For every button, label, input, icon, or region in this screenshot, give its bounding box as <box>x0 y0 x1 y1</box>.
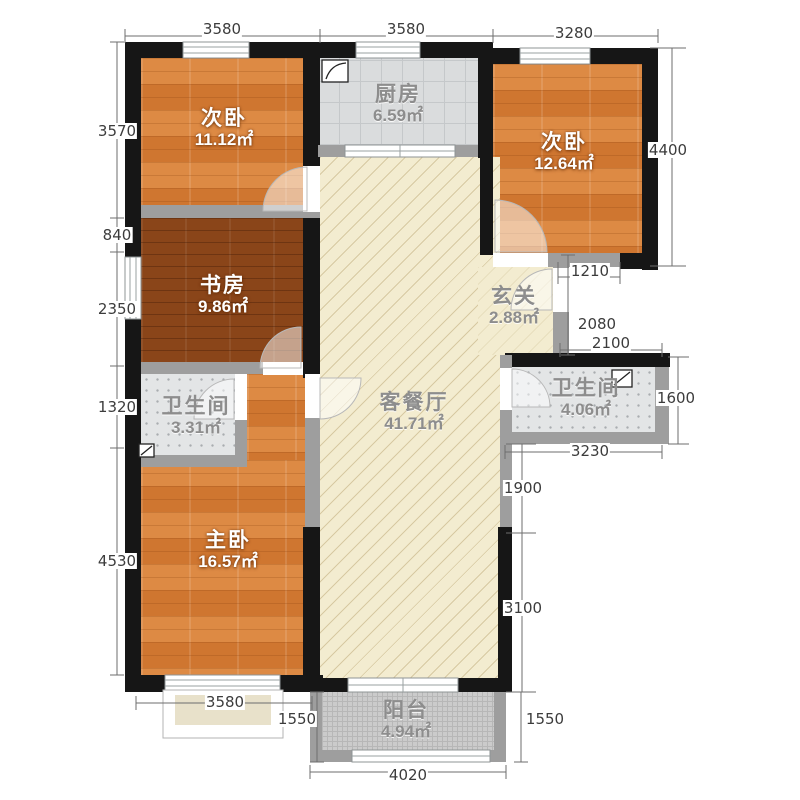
room-label-balcony: 阳台 4.94㎡ <box>381 700 431 742</box>
room-label-kitchen: 厨房 6.59㎡ <box>373 84 423 126</box>
dim-1550-right-balcony: 1550 <box>525 711 565 727</box>
dim-3570-left: 3570 <box>97 123 137 139</box>
room-label-bath-left: 卫生间 3.31㎡ <box>162 396 231 438</box>
room-label-study: 书房 9.86㎡ <box>198 275 248 317</box>
dim-4530-left: 4530 <box>97 553 137 569</box>
dim-3580-top-mid: 3580 <box>386 21 426 37</box>
dim-3580-bottom: 3580 <box>205 694 245 710</box>
dim-840-left: 840 <box>102 227 133 243</box>
window-bedroom-top-left <box>183 42 249 58</box>
dim-3100-right: 3100 <box>503 600 543 616</box>
door-arc-study <box>260 327 301 368</box>
window-master <box>165 675 280 691</box>
entry-door-opening <box>553 268 569 312</box>
room-label-bath-right: 卫生间 4.06㎡ <box>552 378 621 420</box>
door-arc-corridor <box>320 378 361 419</box>
dim-1320-left: 1320 <box>97 399 137 415</box>
room-label-living-dining: 客餐厅 41.71㎡ <box>380 392 449 434</box>
dim-1600-right: 1600 <box>656 390 696 406</box>
door-arc-bedroom-top-right <box>495 200 547 252</box>
room-label-bedroom-top-left: 次卧 11.12㎡ <box>195 108 254 150</box>
dim-1550-left-balcony: 1550 <box>277 711 317 727</box>
dim-3280-top-right: 3280 <box>554 25 594 41</box>
dim-2100-right: 2100 <box>591 335 631 351</box>
dim-2080-right: 2080 <box>577 316 617 332</box>
dim-1210-right: 1210 <box>570 263 610 279</box>
dim-3230-right: 3230 <box>570 443 610 459</box>
dim-3580-top-left: 3580 <box>202 21 242 37</box>
dim-4400-right: 4400 <box>648 142 688 158</box>
dim-4020-bottom: 4020 <box>388 767 428 783</box>
dim-1900-right: 1900 <box>503 480 543 496</box>
dim-2350-left: 2350 <box>97 301 137 317</box>
door-arc-bedroom-top-left <box>263 167 307 211</box>
door-arc-bath-right <box>512 369 550 407</box>
room-label-master-bedroom: 主卧 16.57㎡ <box>198 530 258 572</box>
floor-plan: 次卧 11.12㎡ 厨房 6.59㎡ 次卧 12.64㎡ 书房 9.86㎡ 玄关… <box>0 0 800 800</box>
window-bedroom-top-right <box>520 48 590 64</box>
room-label-bedroom-top-right: 次卧 12.64㎡ <box>534 132 594 174</box>
window-kitchen <box>356 42 420 58</box>
room-label-hall: 玄关 2.88㎡ <box>489 286 539 328</box>
